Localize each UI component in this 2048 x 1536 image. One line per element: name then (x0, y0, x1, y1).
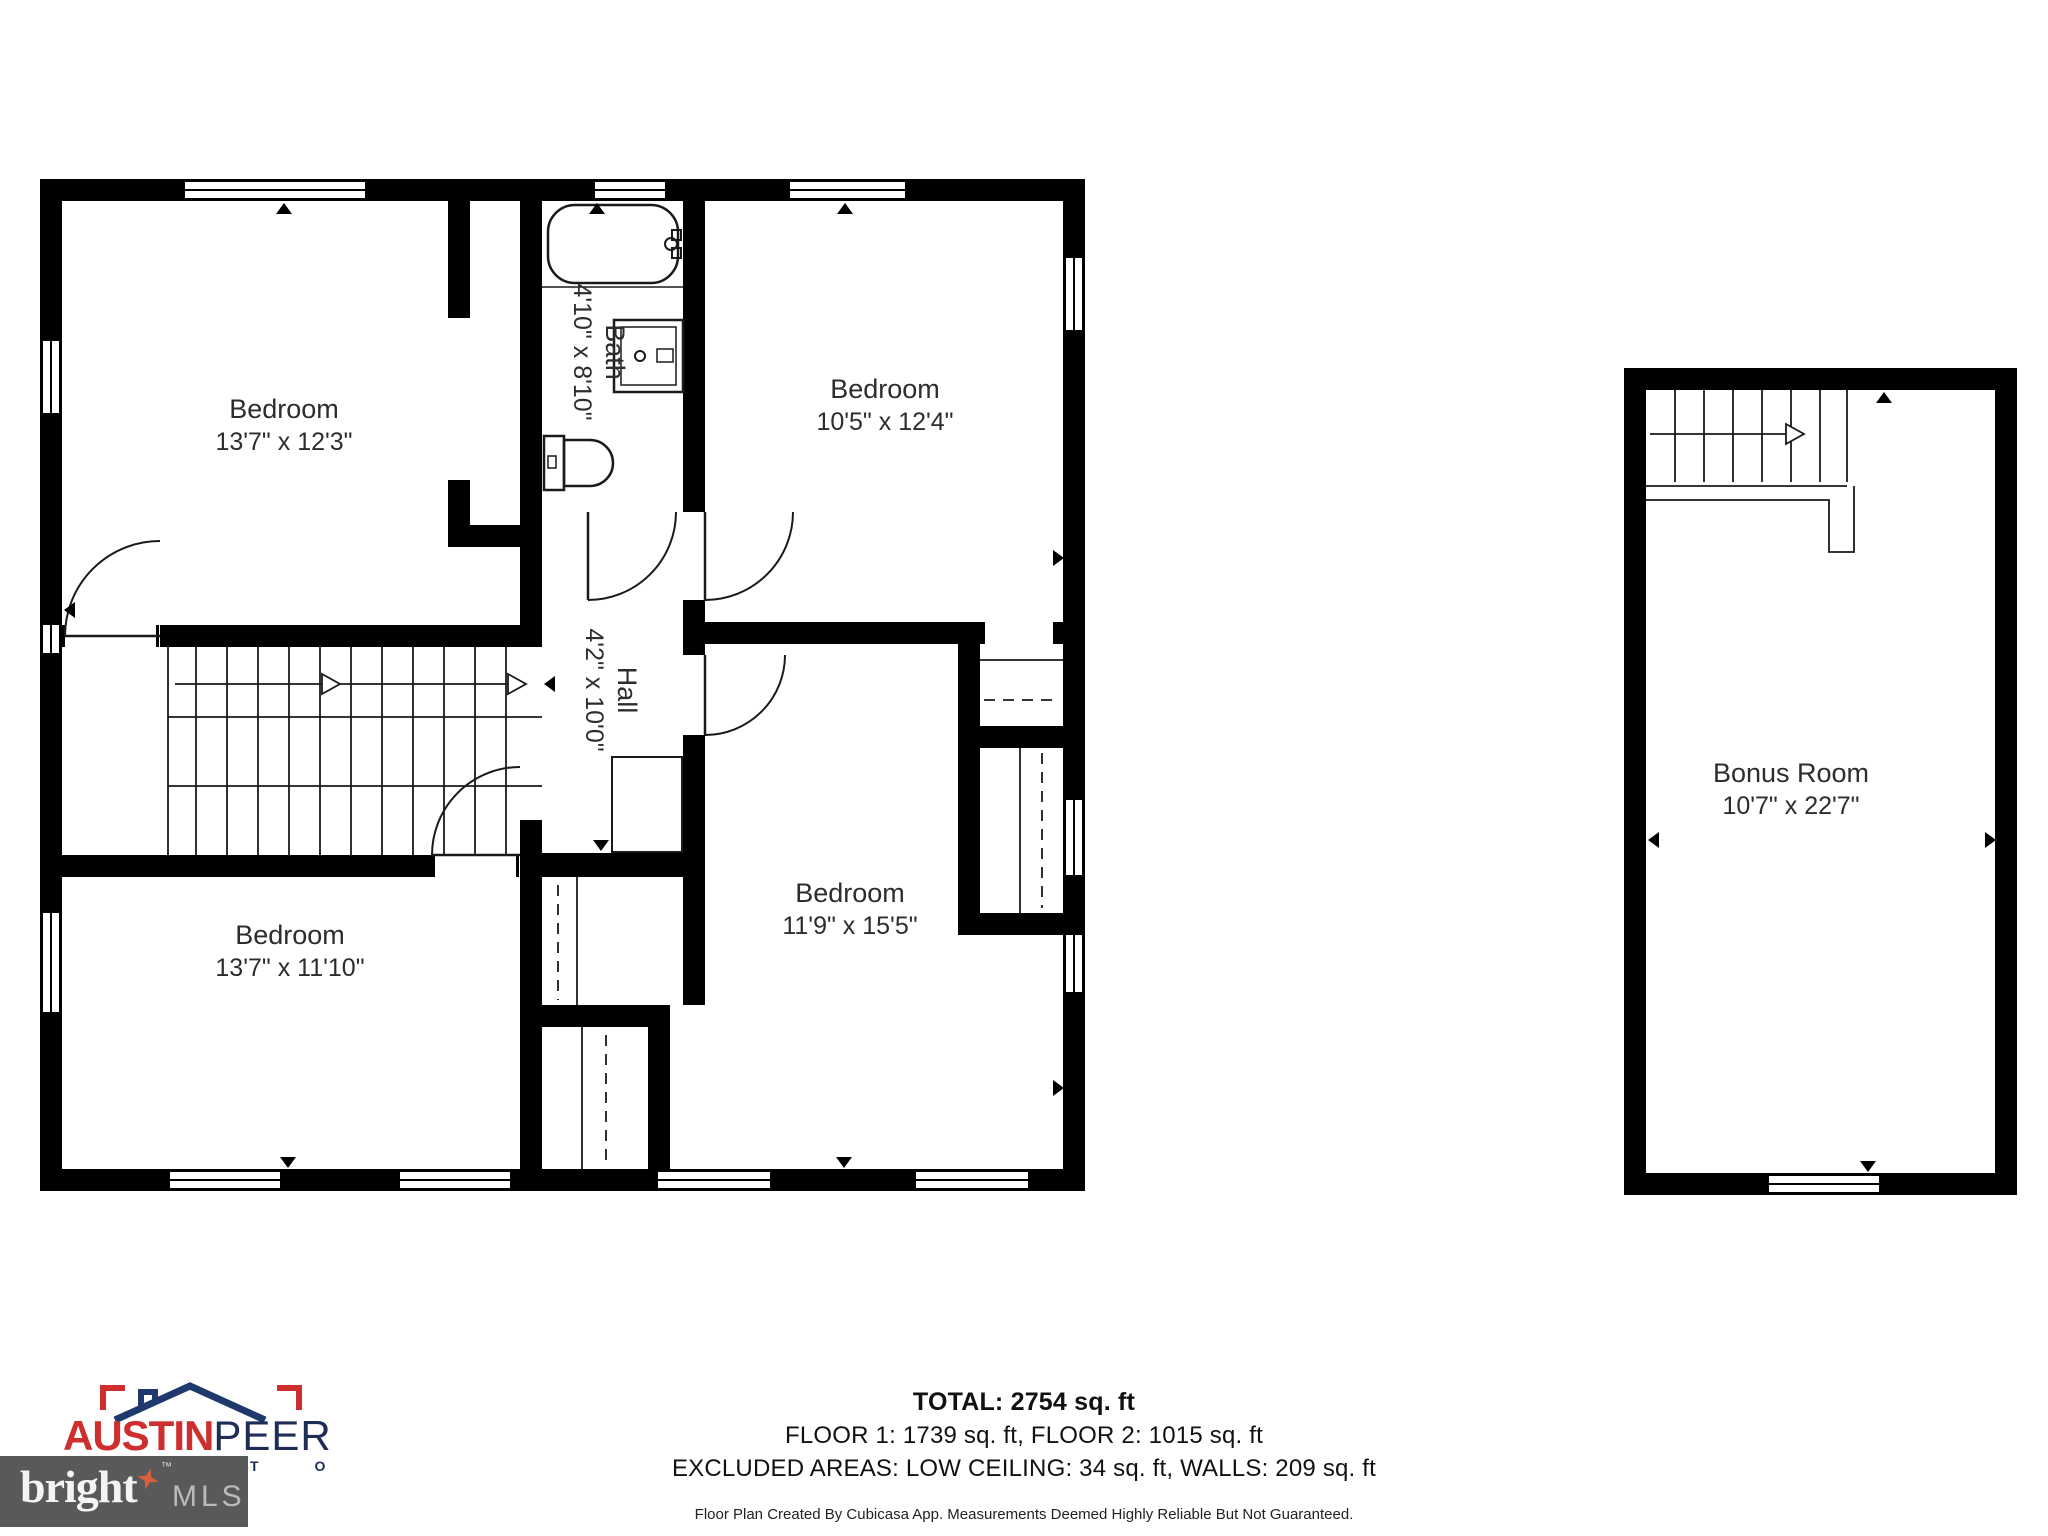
room-name: Bath (598, 237, 632, 467)
star-icon (137, 1468, 159, 1495)
window (790, 179, 905, 201)
door-arc-bedroom-bottom-right (705, 655, 785, 735)
stairs-bonus (1646, 390, 1854, 552)
wall-marker (1876, 392, 1892, 403)
peer-wordmark: PEER (213, 1412, 331, 1459)
room-label-bonus-room: Bonus Room 10'7" x 22'7" (1641, 756, 1941, 822)
wall-marker (836, 1157, 852, 1168)
stairs-main (168, 647, 542, 855)
wall-marker (1985, 832, 1996, 848)
room-label-bedroom-top-left: Bedroom 13'7" x 12'3" (134, 392, 434, 458)
brightmls-logo: bright ™ MLS (0, 1456, 248, 1527)
window (1063, 935, 1085, 992)
room-dims: 10'7" x 22'7" (1641, 790, 1941, 822)
wall-marker (1053, 1080, 1064, 1096)
room-dims: 10'5" x 12'4" (735, 406, 1035, 438)
window (1063, 258, 1085, 330)
room-label-bedroom-bottom-left: Bedroom 13'7" x 11'10" (140, 918, 440, 984)
room-name: Hall (610, 575, 644, 805)
window (40, 341, 62, 413)
window (916, 1169, 1028, 1191)
austinpeer-logo: AUSTINPEER (63, 1412, 332, 1460)
wall-marker (276, 203, 292, 214)
room-dims: 13'7" x 12'3" (134, 426, 434, 458)
room-name: Bedroom (735, 372, 1035, 406)
bright-wordmark: bright (20, 1460, 137, 1513)
window (185, 179, 365, 201)
window (658, 1169, 770, 1191)
room-label-bedroom-bottom-right: Bedroom 11'9" x 15'5" (700, 876, 1000, 942)
door-arc-bedroom-top-left (65, 541, 160, 636)
wall-marker (1648, 832, 1659, 848)
room-label-bedroom-top-right: Bedroom 10'5" x 12'4" (735, 372, 1035, 438)
wall-marker (544, 676, 555, 692)
room-name: Bonus Room (1641, 756, 1941, 790)
wall-marker (64, 602, 75, 618)
room-dims: 11'9" x 15'5" (700, 910, 1000, 942)
room-name: Bedroom (140, 918, 440, 952)
room-dims: 4'2" x 10'0" (578, 575, 610, 805)
wall-marker (1860, 1161, 1876, 1172)
room-name: Bedroom (700, 876, 1000, 910)
room-name: Bedroom (134, 392, 434, 426)
window (170, 1169, 280, 1191)
wall-marker (589, 203, 605, 214)
window (1769, 1173, 1879, 1195)
window (40, 625, 62, 653)
mls-wordmark: MLS (172, 1480, 246, 1514)
wall-marker (593, 840, 609, 851)
wall-marker (280, 1157, 296, 1168)
window (400, 1169, 510, 1191)
disclaimer: Floor Plan Created By Cubicasa App. Meas… (0, 1506, 2048, 1523)
floor-plan-canvas: Bedroom 13'7" x 12'3" Bedroom 10'5" x 12… (0, 0, 2048, 1536)
room-dims: 13'7" x 11'10" (140, 952, 440, 984)
wall-marker (1053, 550, 1064, 566)
room-dims: 4'10" x 8'10" (566, 237, 598, 467)
trademark-symbol: ™ (161, 1461, 172, 1473)
photo-partial-letters: T O (250, 1458, 351, 1474)
austin-wordmark: AUSTIN (63, 1412, 213, 1459)
window (1063, 800, 1085, 875)
door-arc-bedroom-top-right (705, 512, 793, 600)
wall-marker (837, 203, 853, 214)
window (595, 179, 665, 201)
room-label-hall: Hall 4'2" x 10'0" (580, 575, 644, 805)
window (40, 913, 62, 1012)
room-label-bath: Bath 4'10" x 8'10" (568, 237, 632, 467)
